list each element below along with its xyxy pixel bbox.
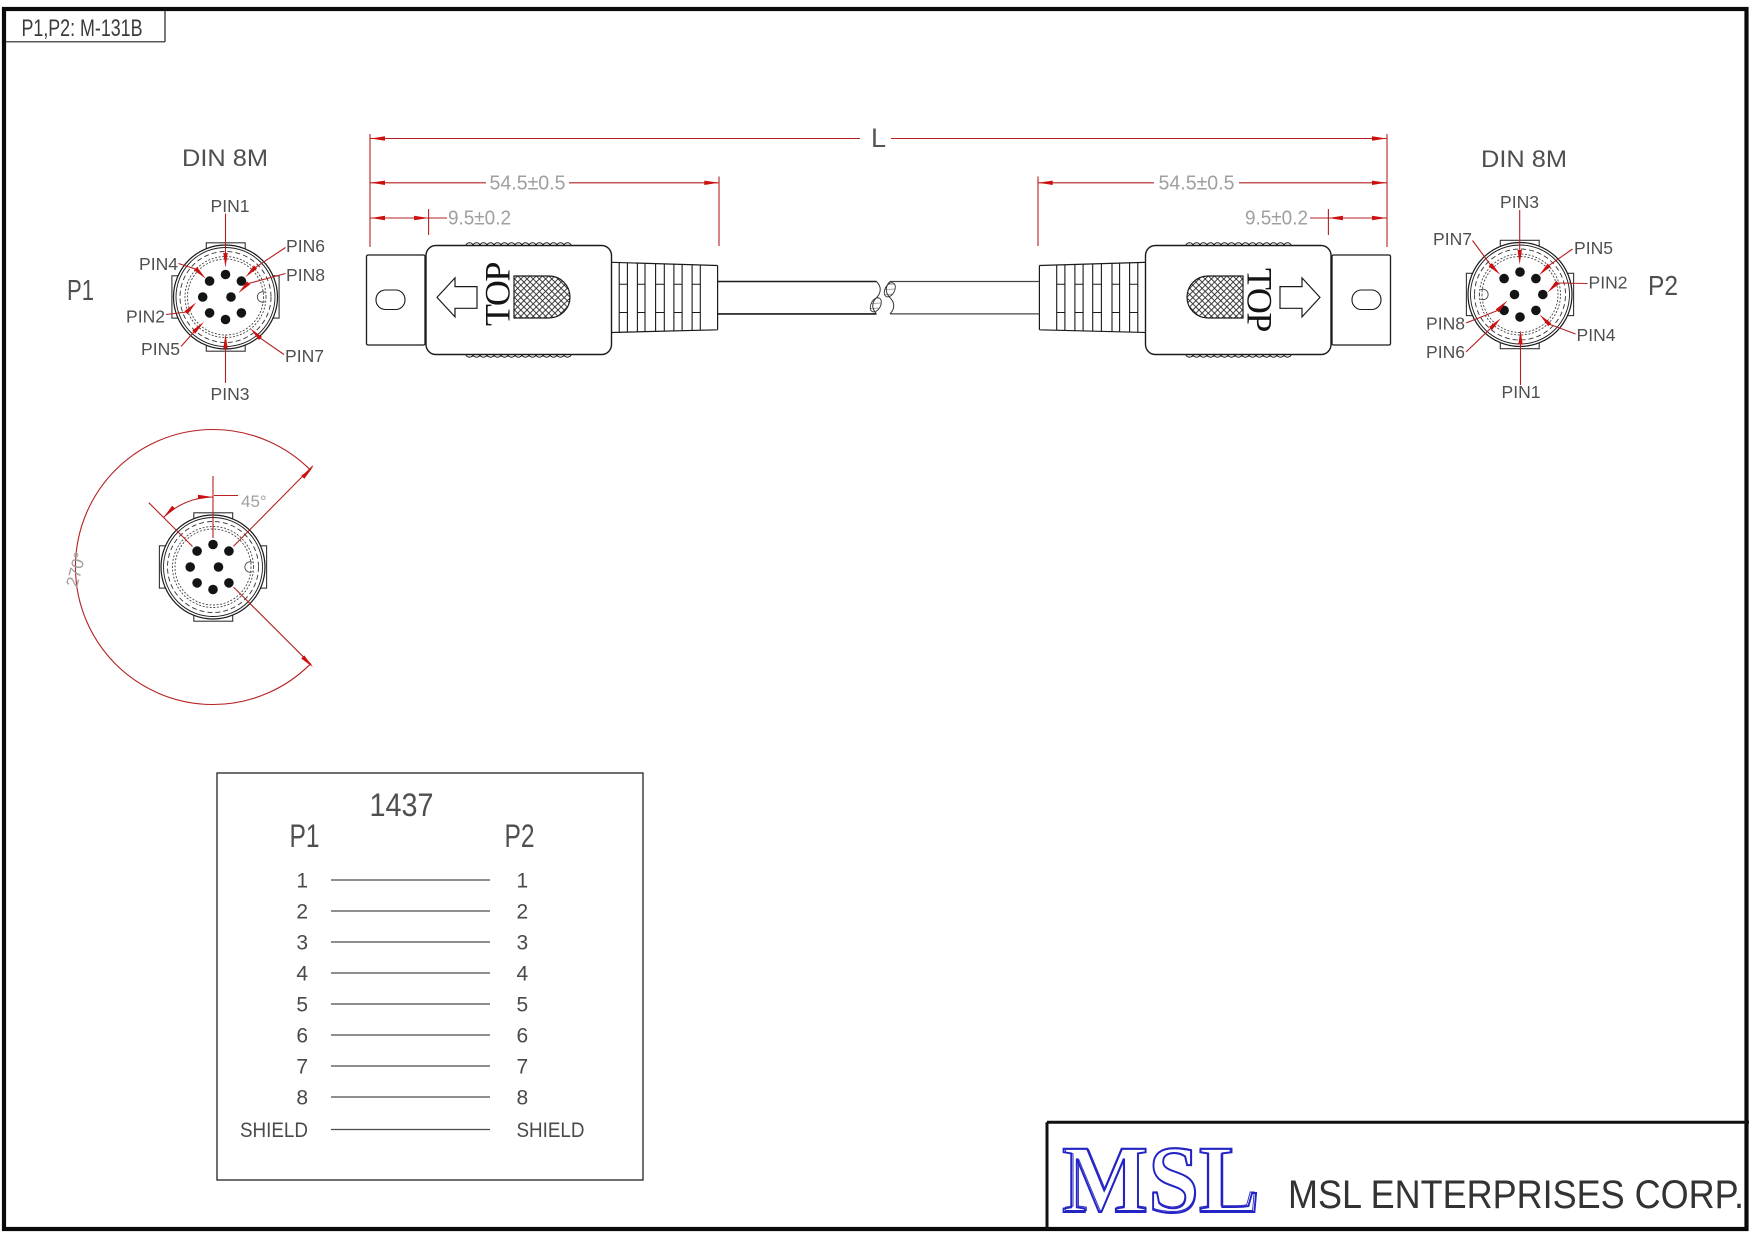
svg-text:DIN 8M: DIN 8M [1481, 146, 1567, 173]
svg-text:54.5±0.5: 54.5±0.5 [1159, 173, 1235, 195]
svg-text:PIN3: PIN3 [1500, 192, 1539, 212]
svg-text:TOP: TOP [1240, 268, 1280, 331]
svg-text:DIN 8M: DIN 8M [182, 145, 268, 172]
svg-text:PIN2: PIN2 [126, 307, 165, 327]
svg-text:3: 3 [296, 932, 308, 955]
svg-text:5: 5 [517, 994, 529, 1017]
svg-text:2: 2 [517, 901, 529, 924]
svg-text:1437: 1437 [370, 787, 434, 823]
svg-text:7: 7 [296, 1056, 308, 1079]
svg-text:1: 1 [296, 870, 308, 893]
svg-text:45°: 45° [241, 492, 267, 511]
svg-text:9.5±0.2: 9.5±0.2 [1245, 208, 1308, 230]
svg-text:PIN8: PIN8 [286, 265, 325, 285]
svg-text:PIN6: PIN6 [1426, 342, 1465, 362]
svg-text:7: 7 [517, 1056, 529, 1079]
svg-text:P2: P2 [505, 818, 535, 854]
svg-text:4: 4 [517, 963, 529, 986]
svg-text:PIN2: PIN2 [1589, 273, 1628, 293]
svg-text:8: 8 [517, 1087, 529, 1110]
svg-text:4: 4 [296, 963, 308, 986]
svg-text:3: 3 [517, 932, 529, 955]
svg-text:SHIELD: SHIELD [240, 1119, 308, 1142]
svg-text:1: 1 [517, 870, 529, 893]
svg-text:PIN4: PIN4 [139, 254, 178, 274]
svg-text:L: L [871, 123, 886, 153]
svg-text:6: 6 [296, 1025, 308, 1048]
svg-text:P1,P2: M-131B: P1,P2: M-131B [22, 15, 143, 42]
svg-text:PIN5: PIN5 [1574, 238, 1613, 258]
svg-text:P1: P1 [67, 275, 94, 307]
svg-text:6: 6 [517, 1025, 529, 1048]
svg-text:P1: P1 [290, 818, 320, 854]
svg-text:TOP: TOP [478, 263, 518, 326]
svg-text:PIN1: PIN1 [211, 196, 250, 216]
svg-text:P2: P2 [1648, 270, 1678, 301]
svg-text:270°: 270° [63, 550, 90, 589]
svg-text:9.5±0.2: 9.5±0.2 [448, 208, 511, 230]
svg-text:PIN4: PIN4 [1577, 325, 1616, 345]
svg-text:PIN7: PIN7 [285, 346, 324, 366]
svg-text:MSL ENTERPRISES CORP.: MSL ENTERPRISES CORP. [1288, 1173, 1744, 1217]
svg-text:MSL: MSL [1064, 1129, 1258, 1232]
svg-text:PIN3: PIN3 [211, 384, 250, 404]
svg-text:54.5±0.5: 54.5±0.5 [490, 173, 566, 195]
svg-text:8: 8 [296, 1087, 308, 1110]
svg-text:PIN7: PIN7 [1433, 229, 1472, 249]
svg-text:2: 2 [296, 901, 308, 924]
svg-text:PIN5: PIN5 [141, 339, 180, 359]
svg-text:SHIELD: SHIELD [517, 1119, 585, 1142]
svg-text:PIN8: PIN8 [1426, 314, 1465, 334]
svg-text:PIN6: PIN6 [286, 236, 325, 256]
svg-text:5: 5 [296, 994, 308, 1017]
